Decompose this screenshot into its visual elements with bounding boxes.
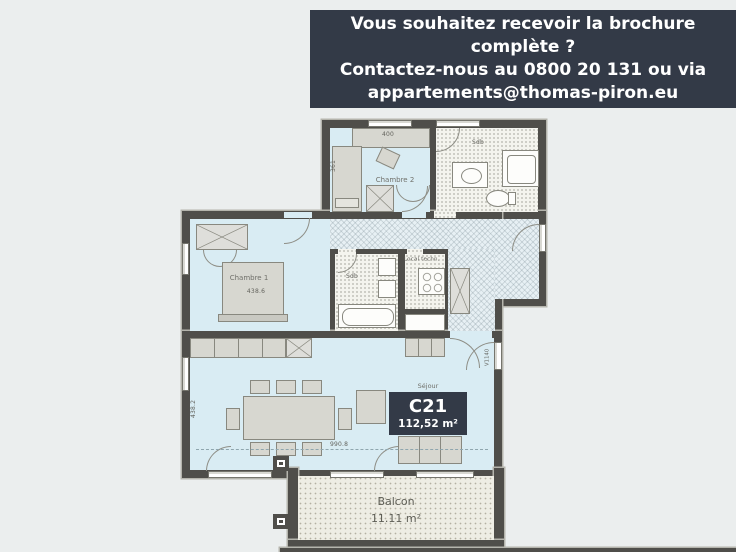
- appliance-localtech: [418, 268, 445, 295]
- window-sejour-bottom-3: [416, 471, 474, 478]
- balcony-wall-bottom: [288, 540, 504, 547]
- balcon-area: 11.11 m²: [340, 511, 452, 528]
- flyer-page: { "colors": { "background": "#ebeeee", "…: [0, 0, 736, 552]
- balcony-wall-left: [288, 468, 298, 546]
- balcony-wall-right: [494, 468, 504, 546]
- kitchen-counter-right: [405, 338, 445, 357]
- label-chambre2: Chambre 2: [360, 176, 430, 184]
- washbasin-top: [452, 162, 488, 188]
- window-chambre2-top: [368, 120, 412, 127]
- banner-line-1: Vous souhaitez recevoir la brochure comp…: [310, 13, 736, 59]
- chair-left: [226, 408, 240, 430]
- label-door-v1140: V1140: [484, 349, 490, 366]
- window-sejour-left: [182, 357, 189, 391]
- balcony-label-group: Balcon 11.11 m²: [340, 494, 452, 527]
- toilet-tank: [508, 192, 516, 205]
- washbasin-top-bowl: [461, 168, 482, 184]
- basin-mid-b: [378, 280, 396, 298]
- dim-sejour-height: 438.2: [190, 400, 197, 418]
- entry-door-gap: [539, 224, 546, 252]
- shower: [502, 150, 539, 187]
- kitchen-sink: [286, 338, 312, 358]
- column-lower: [273, 514, 289, 529]
- label-sdb-mid: Sdb: [346, 273, 358, 280]
- headboard-chambre1: [218, 314, 288, 322]
- unit-area: 112,52 m²: [389, 418, 467, 430]
- window-sejour-bottom-2: [330, 471, 384, 478]
- wardrobe-chambre2: [366, 185, 394, 212]
- dining-table: [243, 396, 335, 440]
- label-sdb-top: Sdb: [472, 139, 484, 146]
- label-balcon: Balcon: [340, 494, 452, 511]
- column-upper: [273, 456, 289, 471]
- localtech-counter: [405, 314, 445, 331]
- door-gap-hall-sejour: [450, 331, 492, 338]
- dim-chambre1-width: 438.6: [226, 288, 286, 295]
- kitchen-counter: [190, 338, 286, 358]
- dimension-line-sejour: [196, 449, 488, 450]
- window-sejour-bottom-1: [208, 471, 272, 478]
- wardrobe-chambre1: [196, 224, 248, 250]
- banner-line-3: appartements@thomas-piron.eu: [310, 82, 736, 105]
- label-chambre1: Chambre 1: [214, 274, 284, 282]
- chair-top-3: [302, 380, 322, 394]
- dim-chambre2-height: 361: [330, 160, 337, 172]
- dim-desk-width: 400: [382, 131, 394, 138]
- chair-top-1: [250, 380, 270, 394]
- lower-plan-edge: [280, 548, 736, 552]
- hall-closet: [450, 268, 470, 314]
- chair-right: [338, 408, 352, 430]
- contact-banner: Vous souhaitez recevoir la brochure comp…: [310, 10, 736, 108]
- banner-line-2: Contactez-nous au 0800 20 131 ou via: [310, 59, 736, 82]
- dim-sejour-width: 990.8: [330, 441, 348, 448]
- door-gap-localtech: [407, 249, 423, 254]
- label-sejour: Séjour: [389, 382, 467, 390]
- window-sdbtop-top: [436, 120, 480, 127]
- bathtub-inner: [342, 308, 394, 326]
- chair-top-2: [276, 380, 296, 394]
- shower-tray: [507, 155, 536, 184]
- armchair: [356, 390, 386, 424]
- unit-number: C21: [389, 397, 467, 418]
- toilet: [486, 190, 510, 207]
- door-gap-v1140: [494, 342, 502, 370]
- bathtub: [338, 304, 396, 328]
- sofa: [398, 436, 462, 464]
- pillow-chambre2: [335, 198, 359, 208]
- door-gap-sdbtop: [434, 211, 456, 218]
- label-localtech: Local techn.: [404, 256, 440, 262]
- door-gap-chambre2: [402, 211, 426, 218]
- window-chambre1-left: [182, 243, 189, 275]
- basin-mid-a: [378, 258, 396, 276]
- unit-badge: C21 112,52 m²: [389, 392, 467, 435]
